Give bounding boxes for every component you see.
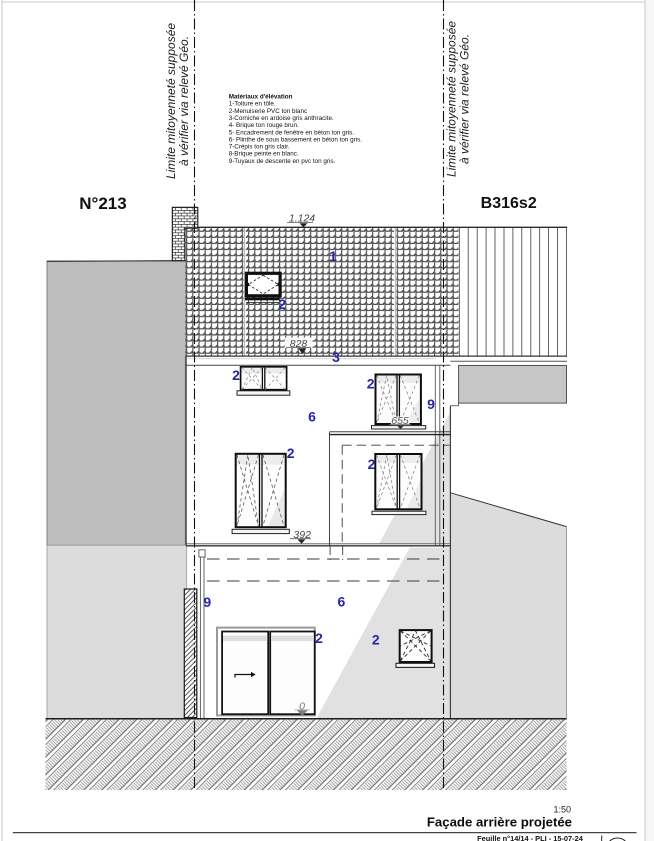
svg-text:9-Tuyaux de descente en pvc to: 9-Tuyaux de descente en pvc ton gris. — [229, 158, 336, 165]
svg-text:à vérifier via relevé Géo.: à vérifier via relevé Géo. — [177, 36, 191, 166]
svg-text:8-Brique peinte en blanc.: 8-Brique peinte en blanc. — [229, 151, 299, 158]
svg-text:3-Corniche en ardoise gris ant: 3-Corniche en ardoise gris anthracite. — [229, 115, 334, 122]
svg-text:2: 2 — [368, 456, 376, 472]
svg-text:N°213: N°213 — [79, 194, 126, 213]
svg-text:2-Menuiserie PVC ton blanc: 2-Menuiserie PVC ton blanc — [229, 108, 307, 115]
svg-text:Limite mitoyenneté supposée: Limite mitoyenneté supposée — [164, 23, 178, 179]
svg-text:2: 2 — [372, 632, 380, 648]
svg-text:9: 9 — [427, 396, 435, 412]
svg-text:7-Crépis ton gris clair.: 7-Crépis ton gris clair. — [229, 144, 290, 151]
svg-text:Matériaux d'élévation: Matériaux d'élévation — [229, 94, 293, 101]
svg-text:2: 2 — [232, 367, 240, 383]
svg-text:6- Plinthe de sous bassement e: 6- Plinthe de sous bassement en béton to… — [229, 136, 363, 143]
svg-text:2: 2 — [287, 445, 295, 461]
svg-text:1:50: 1:50 — [553, 805, 571, 815]
svg-text:Feuille n°14/14 - PLI - 15-07-: Feuille n°14/14 - PLI - 15-07-24 — [477, 834, 584, 841]
svg-text:1-Toiture en tôle.: 1-Toiture en tôle. — [229, 101, 276, 108]
svg-text:2: 2 — [315, 630, 323, 646]
svg-text:Limite mitoyenneté supposée: Limite mitoyenneté supposée — [445, 21, 459, 177]
svg-text:5- Encadrement de fenêtre en b: 5- Encadrement de fenêtre en béton ton g… — [229, 129, 355, 136]
svg-text:à vérifier via relevé Géo.: à vérifier via relevé Géo. — [458, 34, 472, 164]
svg-text:B316s2: B316s2 — [481, 195, 537, 212]
svg-text:9: 9 — [203, 594, 211, 610]
svg-text:Façade arrière projetée: Façade arrière projetée — [427, 815, 572, 830]
svg-text:4- Brique ton rouge brun.: 4- Brique ton rouge brun. — [229, 122, 299, 129]
svg-text:6: 6 — [338, 594, 346, 610]
svg-text:1: 1 — [329, 248, 337, 264]
svg-text:3: 3 — [332, 349, 340, 365]
svg-text:2: 2 — [367, 376, 375, 392]
svg-text:6: 6 — [308, 409, 316, 425]
svg-text:2: 2 — [278, 296, 286, 312]
